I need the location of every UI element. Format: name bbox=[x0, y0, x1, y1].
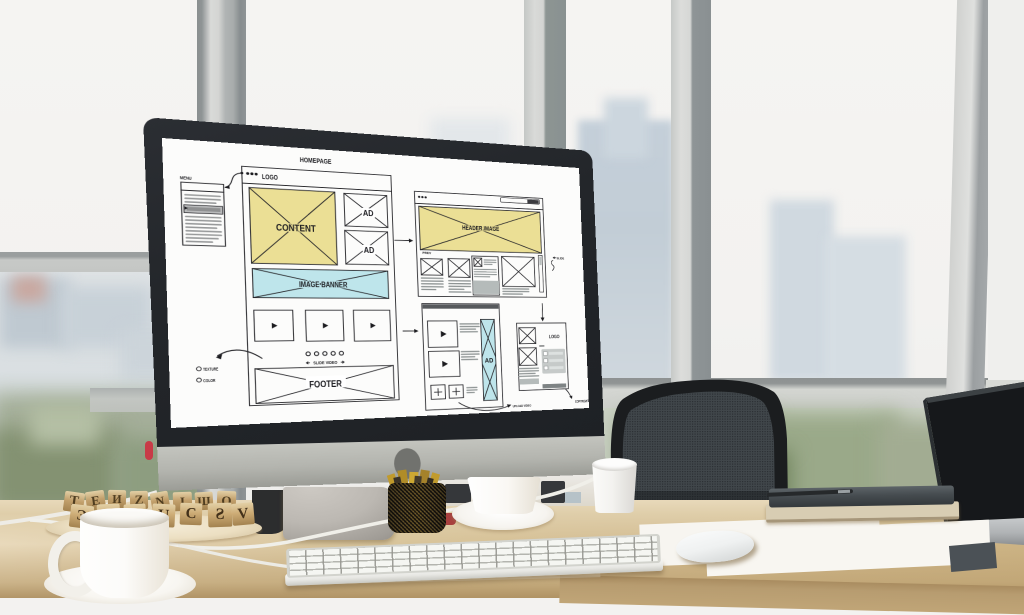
svg-text:HEADER IMAGE: HEADER IMAGE bbox=[462, 224, 499, 233]
svg-text:SLIDE VIDEO: SLIDE VIDEO bbox=[313, 360, 338, 365]
svg-text:SLIDE: SLIDE bbox=[556, 256, 564, 260]
svg-text:COLOR: COLOR bbox=[203, 378, 216, 384]
svg-text:CONTENT: CONTENT bbox=[276, 223, 316, 235]
svg-text:UPLOAD VIDEO: UPLOAD VIDEO bbox=[513, 403, 532, 408]
svg-text:LOGO: LOGO bbox=[549, 335, 560, 340]
svg-text:AD: AD bbox=[363, 209, 374, 219]
svg-text:COPYRIGHT: COPYRIGHT bbox=[575, 399, 589, 403]
svg-text:LOGO: LOGO bbox=[262, 173, 278, 182]
svg-text:AD: AD bbox=[485, 357, 494, 364]
svg-text:MENU: MENU bbox=[180, 175, 192, 181]
svg-text:AD: AD bbox=[364, 246, 375, 255]
svg-text:HOMEPAGE: HOMEPAGE bbox=[300, 156, 332, 166]
svg-text:PREV: PREV bbox=[422, 252, 431, 255]
svg-text:FOOTER: FOOTER bbox=[309, 379, 342, 390]
svg-text:IMAGE BANNER: IMAGE BANNER bbox=[299, 280, 348, 289]
svg-text:TEXTURE: TEXTURE bbox=[203, 367, 219, 373]
